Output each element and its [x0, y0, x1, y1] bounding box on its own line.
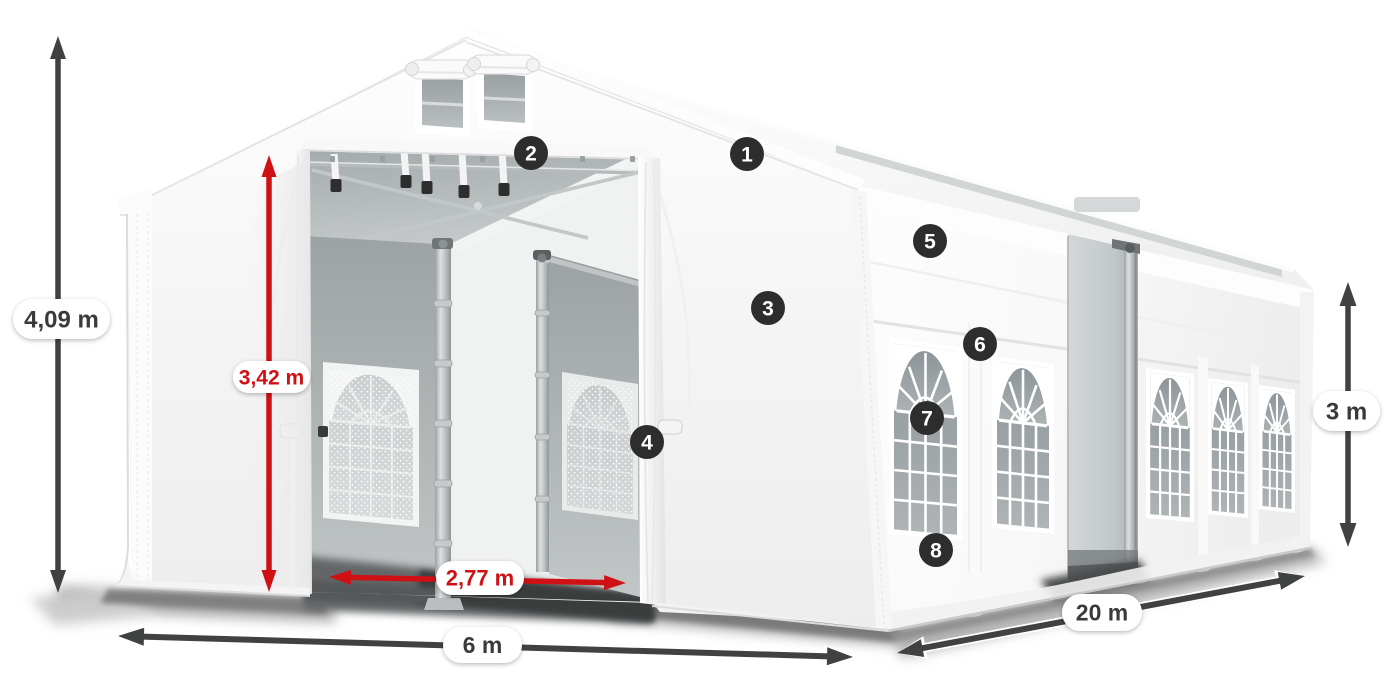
svg-text:3: 3	[762, 298, 774, 321]
svg-text:2,77 m: 2,77 m	[446, 566, 515, 591]
svg-text:6 m: 6 m	[463, 632, 503, 658]
svg-text:7: 7	[921, 408, 933, 431]
svg-text:3 m: 3 m	[1326, 398, 1367, 425]
svg-text:6: 6	[974, 334, 986, 357]
svg-text:1: 1	[741, 144, 753, 167]
svg-text:8: 8	[930, 540, 942, 563]
svg-text:3,42 m: 3,42 m	[239, 366, 304, 389]
svg-text:4,09 m: 4,09 m	[24, 306, 99, 333]
svg-text:5: 5	[924, 231, 936, 254]
svg-text:4: 4	[641, 432, 653, 455]
svg-text:2: 2	[525, 143, 537, 166]
svg-text:20 m: 20 m	[1076, 600, 1128, 626]
